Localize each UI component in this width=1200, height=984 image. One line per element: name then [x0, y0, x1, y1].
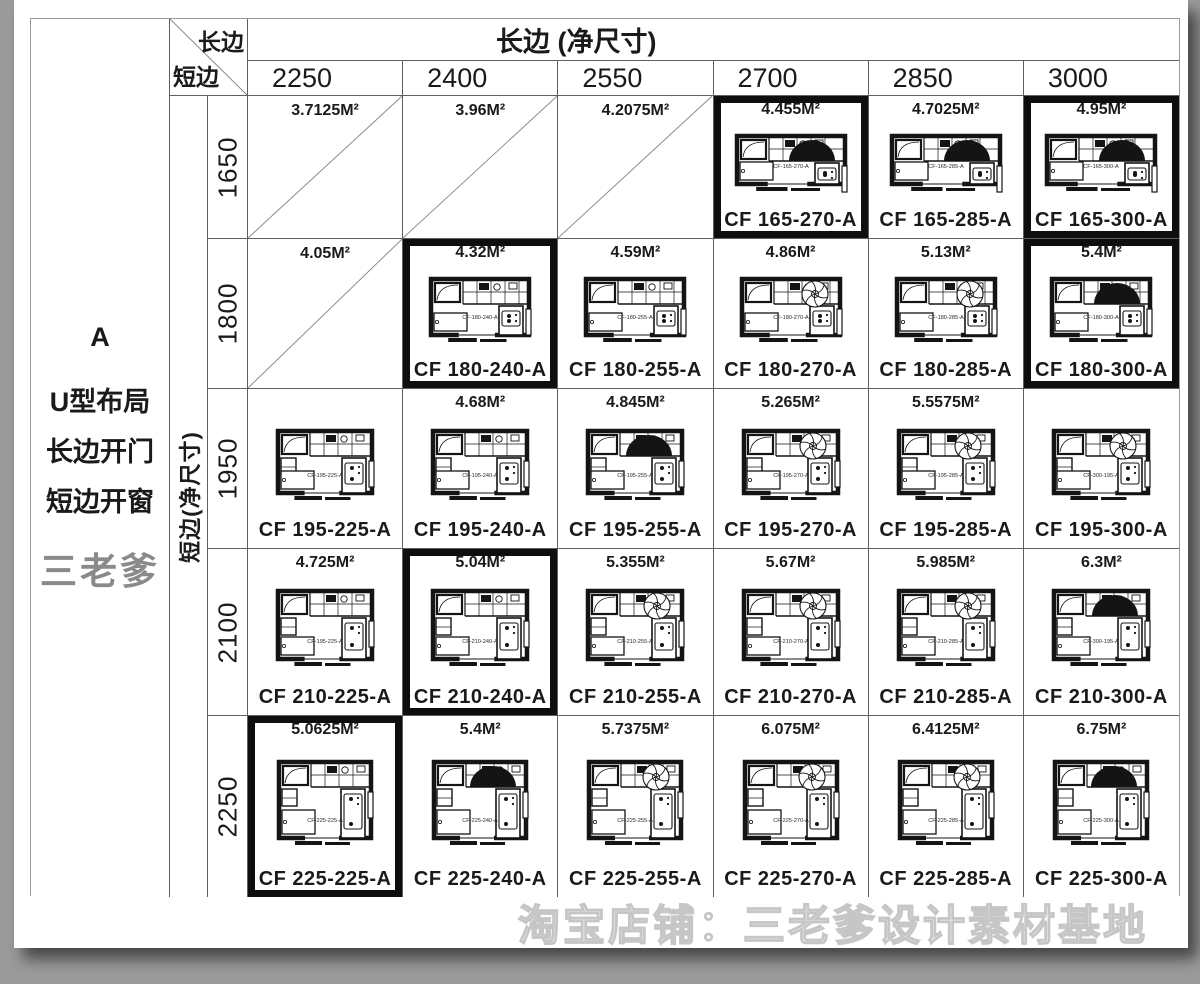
row-header-label: 1950 — [212, 438, 243, 500]
floor-plan-drawing: CF-195-285-A — [895, 427, 997, 507]
row-header-label: 2100 — [212, 601, 243, 663]
svg-text:CF-300-195-A: CF-300-195-A — [1084, 473, 1120, 479]
svg-text:CF-300-195-A: CF-300-195-A — [1084, 639, 1120, 645]
cell-code: CF 180-270-A — [724, 359, 857, 382]
row-header-2250: 2250 — [208, 716, 248, 897]
plan-wrap: CF-225-300-A — [1051, 741, 1151, 868]
cell-CF-195-285-A: 5.5575M²CF-195-285-ACF 195-285-A — [869, 389, 1024, 549]
cell-code: CF 210-285-A — [879, 686, 1012, 709]
floor-plan-drawing: CF-180-270-A — [738, 275, 844, 349]
cell-CF-195-255-A: 4.845M²CF-195-255-ACF 195-255-A — [558, 389, 713, 549]
cell-empty-1650-2400: 3.96M² — [403, 96, 558, 239]
plan-wrap: CF-165-300-A — [1043, 121, 1159, 209]
column-header-2550: 2550 — [558, 61, 713, 96]
plan-wrap: CF-180-255-A — [582, 264, 688, 359]
column-header-2700: 2700 — [714, 61, 869, 96]
svg-text:CF-165-300-A: CF-165-300-A — [1084, 164, 1120, 170]
cell-CF-165-285-A: 4.7025M²CF-165-285-ACF 165-285-A — [869, 96, 1024, 239]
plan-wrap: CF-210-285-A — [895, 574, 997, 686]
cell-area: 4.86M² — [766, 242, 816, 264]
cell-code: CF 225-270-A — [724, 868, 857, 891]
cell-CF-210-270-A: 5.67M²CF-210-270-ACF 210-270-A — [714, 549, 869, 716]
cell-area: 4.7025M² — [912, 99, 980, 121]
floor-plan-drawing: CF-210-285-A — [895, 587, 997, 673]
cell-CF-225-300-A: 6.75M²CF-225-300-ACF 225-300-A — [1024, 716, 1179, 897]
cell-area: 6.3M² — [1081, 552, 1122, 574]
cell-CF-210-255-A: 5.355M²CF-210-255-ACF 210-255-A — [558, 549, 713, 716]
svg-text:CF-195-225-A: CF-195-225-A — [307, 639, 343, 645]
cell-CF-180-270-A: 4.86M²CF-180-270-ACF 180-270-A — [714, 239, 869, 389]
cell-empty-1650-2250: 3.7125M² — [248, 96, 403, 239]
svg-text:CF-225-240-A: CF-225-240-A — [463, 818, 499, 824]
plan-wrap: CF-165-270-A — [733, 121, 849, 209]
cell-area: 4.59M² — [611, 242, 661, 264]
svg-text:CF-165-270-A: CF-165-270-A — [773, 164, 809, 170]
cell-CF-225-255-A: 5.7375M²CF-225-255-ACF 225-255-A — [558, 716, 713, 897]
cell-CF-210-300-A: 6.3M²CF-300-195-ACF 210-300-A — [1024, 549, 1179, 716]
corner-long-side-label: 长边 — [198, 23, 244, 57]
svg-text:CF-180-285-A: CF-180-285-A — [928, 315, 964, 321]
floor-plan-drawing: CF-225-255-A — [585, 758, 685, 852]
cell-empty-1650-2550: 4.2075M² — [558, 96, 713, 239]
row-header-1950: 1950 — [208, 389, 248, 549]
cell-CF-180-240-A: 4.32M²CF-180-240-ACF 180-240-A — [403, 239, 558, 389]
cell-area: 5.04M² — [455, 552, 505, 574]
plan-wrap: CF-300-195-A — [1050, 574, 1152, 686]
svg-text:CF-180-300-A: CF-180-300-A — [1084, 315, 1120, 321]
cell-code: CF 195-240-A — [414, 519, 547, 542]
floor-plan-drawing: CF-165-300-A — [1043, 132, 1159, 198]
svg-text:CF-210-285-A: CF-210-285-A — [928, 639, 964, 645]
spec-grid: A U型布局 长边开门 短边开窗 三老爹 长边 短边 长边 (净尺寸) 短边(净… — [30, 18, 1180, 896]
floor-plan-drawing: CF-180-300-A — [1048, 275, 1154, 349]
floor-plan-drawing: CF-195-240-A — [429, 427, 531, 507]
plan-wrap: CF-180-300-A — [1048, 264, 1154, 359]
corner-header: 长边 短边 — [170, 19, 248, 96]
cell-area: 5.7375M² — [602, 719, 670, 741]
plan-wrap: CF-300-195-A — [1050, 414, 1152, 519]
svg-text:CF-225-300-A: CF-225-300-A — [1084, 818, 1120, 824]
svg-text:CF-225-270-A: CF-225-270-A — [773, 818, 809, 824]
column-header-2400: 2400 — [403, 61, 558, 96]
cell-code: CF 195-255-A — [569, 519, 702, 542]
floor-plan-drawing: CF-225-225-A — [275, 758, 375, 852]
plan-wrap: CF-195-240-A — [429, 414, 531, 519]
column-header-2250: 2250 — [248, 61, 403, 96]
long-side-title: 长边 (净尺寸) — [248, 19, 1179, 61]
cell-area: 5.4M² — [460, 719, 501, 741]
cell-code: CF 210-255-A — [569, 686, 702, 709]
floor-plan-drawing: CF-225-300-A — [1051, 758, 1151, 852]
cell-code: CF 225-225-A — [259, 868, 392, 891]
cell-CF-210-285-A: 5.985M²CF-210-285-ACF 210-285-A — [869, 549, 1024, 716]
svg-text:CF-225-255-A: CF-225-255-A — [618, 818, 654, 824]
svg-text:CF-180-240-A: CF-180-240-A — [463, 315, 499, 321]
svg-text:CF-195-270-A: CF-195-270-A — [773, 473, 809, 479]
floor-plan-drawing: CF-225-285-A — [896, 758, 996, 852]
brand-name: 三老爹 — [40, 541, 160, 595]
cell-CF-180-285-A: 5.13M²CF-180-285-ACF 180-285-A — [869, 239, 1024, 389]
floor-plan-drawing: CF-210-240-A — [429, 587, 531, 673]
svg-text:CF-225-225-A: CF-225-225-A — [307, 818, 343, 824]
cell-CF-195-300-A: CF-300-195-ACF 195-300-A — [1024, 389, 1179, 549]
cell-area: 4.68M² — [455, 392, 505, 414]
cell-area: 5.5575M² — [912, 392, 980, 414]
cell-CF-165-300-A: 4.95M²CF-165-300-ACF 165-300-A — [1024, 96, 1179, 239]
row-header-1650: 1650 — [208, 96, 248, 239]
cell-area: 4.95M² — [1077, 99, 1127, 121]
row-header-label: 1800 — [212, 283, 243, 345]
plan-wrap: CF-180-270-A — [738, 264, 844, 359]
layout-code: A — [90, 322, 110, 353]
cell-code: CF 225-240-A — [414, 868, 547, 891]
cell-code: CF 210-270-A — [724, 686, 857, 709]
cell-CF-225-225-A: 5.0625M²CF-225-225-ACF 225-225-A — [248, 716, 403, 897]
floor-plan-drawing: CF-195-225-A — [274, 427, 376, 507]
layout-line-3: 短边开窗 — [46, 477, 154, 527]
floor-plan-drawing: CF-180-285-A — [893, 275, 999, 349]
plan-wrap: CF-195-270-A — [740, 414, 842, 519]
plan-wrap: CF-225-225-A — [275, 741, 375, 868]
cell-area: 4.2075M² — [558, 100, 712, 122]
cell-area: 6.075M² — [761, 719, 820, 741]
cell-area: 4.455M² — [761, 99, 820, 121]
row-header-label: 1650 — [212, 136, 243, 198]
floor-plan-drawing: CF-210-255-A — [584, 587, 686, 673]
cell-CF-225-240-A: 5.4M²CF-225-240-ACF 225-240-A — [403, 716, 558, 897]
layout-line-1: U型布局 — [50, 377, 151, 427]
svg-text:CF-195-240-A: CF-195-240-A — [463, 473, 499, 479]
row-header-2100: 2100 — [208, 549, 248, 716]
floor-plan-drawing: CF-300-195-A — [1050, 427, 1152, 507]
plan-wrap: CF-195-225-A — [274, 414, 376, 519]
plan-wrap: CF-165-285-A — [888, 121, 1004, 209]
cell-code: CF 195-285-A — [879, 519, 1012, 542]
corner-short-side-label: 短边 — [173, 58, 219, 92]
floor-plan-drawing: CF-165-270-A — [733, 132, 849, 198]
plan-wrap: CF-225-270-A — [741, 741, 841, 868]
layout-info-panel: A U型布局 长边开门 短边开窗 三老爹 — [31, 19, 170, 897]
cell-area: 5.0625M² — [291, 719, 359, 741]
cell-CF-210-225-A: 4.725M²CF-195-225-ACF 210-225-A — [248, 549, 403, 716]
cell-CF-210-240-A: 5.04M²CF-210-240-ACF 210-240-A — [403, 549, 558, 716]
column-header-2850: 2850 — [869, 61, 1024, 96]
spec-sheet-page: A U型布局 长边开门 短边开窗 三老爹 长边 短边 长边 (净尺寸) 短边(净… — [14, 0, 1188, 948]
cell-code: CF 210-300-A — [1035, 686, 1168, 709]
plan-wrap: CF-195-225-A — [274, 574, 376, 686]
cell-area: 5.265M² — [761, 392, 820, 414]
row-header-1800: 1800 — [208, 239, 248, 389]
cell-CF-225-285-A: 6.4125M²CF-225-285-ACF 225-285-A — [869, 716, 1024, 897]
cell-area: 5.13M² — [921, 242, 971, 264]
cell-area: 5.67M² — [766, 552, 816, 574]
plan-wrap: CF-225-285-A — [896, 741, 996, 868]
cell-code: CF 180-300-A — [1035, 359, 1168, 382]
cell-code: CF 210-225-A — [259, 686, 392, 709]
cell-empty-1800-2250: 4.05M² — [248, 239, 403, 389]
cell-area: 6.75M² — [1077, 719, 1127, 741]
cell-code: CF 165-300-A — [1035, 209, 1168, 232]
floor-plan-drawing: CF-165-285-A — [888, 132, 1004, 198]
cell-code: CF 180-255-A — [569, 359, 702, 382]
cell-code: CF 180-240-A — [414, 359, 547, 382]
cell-code: CF 225-285-A — [879, 868, 1012, 891]
cell-area: 4.845M² — [606, 392, 665, 414]
cell-area: 5.355M² — [606, 552, 665, 574]
floor-plan-drawing: CF-225-240-A — [430, 758, 530, 852]
svg-text:CF-210-255-A: CF-210-255-A — [618, 639, 654, 645]
column-header-3000: 3000 — [1024, 61, 1179, 96]
svg-text:CF-180-255-A: CF-180-255-A — [618, 315, 654, 321]
cell-area: 4.725M² — [296, 552, 355, 574]
plan-wrap: CF-225-255-A — [585, 741, 685, 868]
floor-plan-drawing: CF-225-270-A — [741, 758, 841, 852]
plan-wrap: CF-195-255-A — [584, 414, 686, 519]
cell-code: CF 180-285-A — [879, 359, 1012, 382]
svg-text:CF-195-285-A: CF-195-285-A — [928, 473, 964, 479]
cell-CF-195-270-A: 5.265M²CF-195-270-ACF 195-270-A — [714, 389, 869, 549]
svg-text:CF-180-270-A: CF-180-270-A — [773, 315, 809, 321]
cell-CF-165-270-A: 4.455M²CF-165-270-ACF 165-270-A — [714, 96, 869, 239]
cell-area: 3.96M² — [403, 100, 557, 122]
short-side-title-strip: 短边(净尺寸) — [170, 96, 208, 897]
floor-plan-drawing: CF-195-255-A — [584, 427, 686, 507]
plan-wrap: CF-180-240-A — [427, 264, 533, 359]
cell-area: 5.985M² — [916, 552, 975, 574]
floor-plan-drawing: CF-300-195-A — [1050, 587, 1152, 673]
plan-wrap: CF-225-240-A — [430, 741, 530, 868]
plan-wrap: CF-180-285-A — [893, 264, 999, 359]
cell-area: 6.4125M² — [912, 719, 980, 741]
short-side-title: 短边(净尺寸) — [173, 431, 205, 563]
plan-wrap: CF-195-285-A — [895, 414, 997, 519]
floor-plan-drawing: CF-210-270-A — [740, 587, 842, 673]
plan-wrap: CF-210-255-A — [584, 574, 686, 686]
svg-text:CF-165-285-A: CF-165-285-A — [928, 164, 964, 170]
cell-area: 3.7125M² — [248, 100, 402, 122]
svg-text:CF-210-240-A: CF-210-240-A — [463, 639, 499, 645]
cell-code: CF 195-270-A — [724, 519, 857, 542]
plan-wrap: CF-210-270-A — [740, 574, 842, 686]
cell-code: CF 210-240-A — [414, 686, 547, 709]
cell-code: CF 165-270-A — [724, 209, 857, 232]
cell-CF-225-270-A: 6.075M²CF-225-270-ACF 225-270-A — [714, 716, 869, 897]
row-header-label: 2250 — [212, 776, 243, 838]
plan-wrap: CF-210-240-A — [429, 574, 531, 686]
cell-code: CF 225-255-A — [569, 868, 702, 891]
floor-plan-drawing: CF-180-240-A — [427, 275, 533, 349]
canvas: A U型布局 长边开门 短边开窗 三老爹 长边 短边 长边 (净尺寸) 短边(净… — [0, 0, 1200, 984]
svg-text:CF-195-255-A: CF-195-255-A — [618, 473, 654, 479]
cell-CF-195-240-A: 4.68M²CF-195-240-ACF 195-240-A — [403, 389, 558, 549]
floor-plan-drawing: CF-195-225-A — [274, 587, 376, 673]
cell-code: CF 195-300-A — [1035, 519, 1168, 542]
cell-area: 5.4M² — [1081, 242, 1122, 264]
floor-plan-drawing: CF-180-255-A — [582, 275, 688, 349]
layout-line-2: 长边开门 — [46, 427, 154, 477]
svg-text:CF-225-285-A: CF-225-285-A — [928, 818, 964, 824]
cell-CF-180-255-A: 4.59M²CF-180-255-ACF 180-255-A — [558, 239, 713, 389]
floor-plan-drawing: CF-195-270-A — [740, 427, 842, 507]
cell-area: 4.05M² — [248, 243, 402, 265]
cell-area: 4.32M² — [455, 242, 505, 264]
cell-code: CF 165-285-A — [879, 209, 1012, 232]
cell-CF-180-300-A: 5.4M²CF-180-300-ACF 180-300-A — [1024, 239, 1179, 389]
svg-text:CF-195-225-A: CF-195-225-A — [307, 473, 343, 479]
cell-code: CF 195-225-A — [259, 519, 392, 542]
cell-CF-195-225-A: CF-195-225-ACF 195-225-A — [248, 389, 403, 549]
svg-text:CF-210-270-A: CF-210-270-A — [773, 639, 809, 645]
taobao-watermark: 淘宝店铺：三老爹设计素材基地 — [518, 892, 1148, 953]
cell-code: CF 225-300-A — [1035, 868, 1168, 891]
